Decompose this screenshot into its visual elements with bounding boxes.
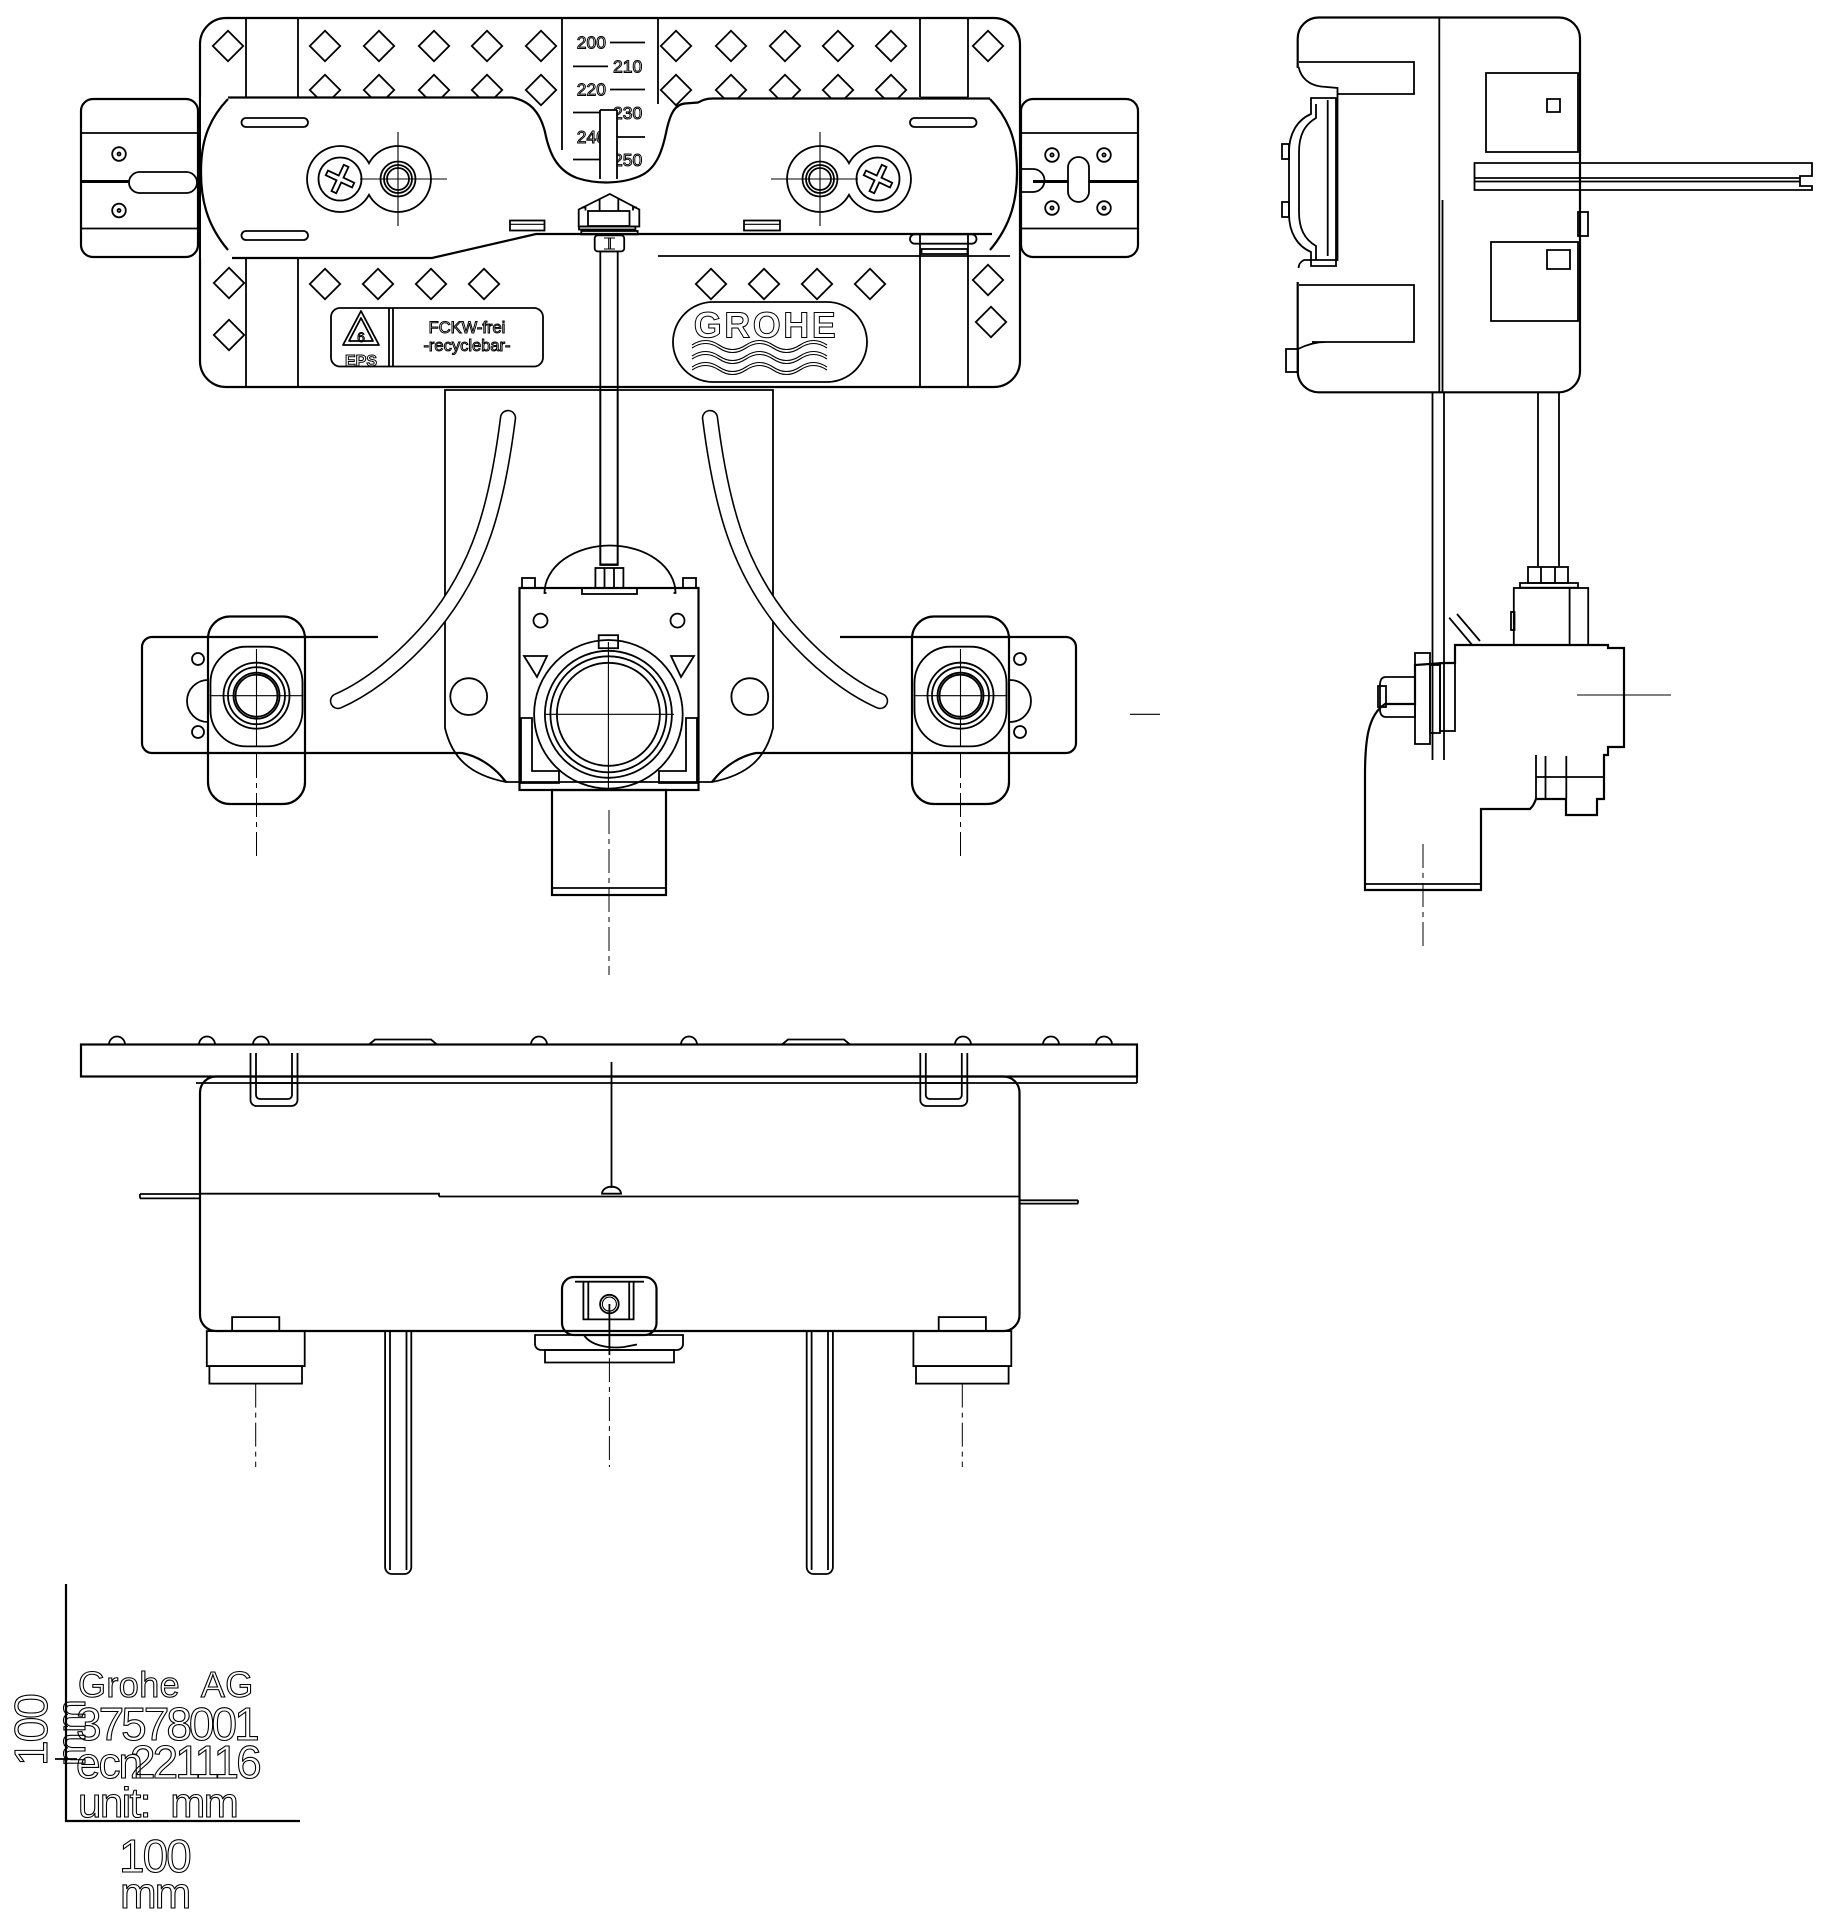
svg-text:GROHE: GROHE <box>694 305 839 346</box>
svg-text:200: 200 <box>577 33 606 53</box>
svg-text:EPS: EPS <box>345 353 377 370</box>
svg-text:220: 220 <box>577 80 606 100</box>
svg-text:6: 6 <box>357 329 365 345</box>
svg-text:FCKW-frei: FCKW-frei <box>429 319 506 337</box>
svg-text:unit: mm: unit: mm <box>78 1779 237 1826</box>
svg-text:210: 210 <box>613 57 642 77</box>
svg-text:mm: mm <box>50 1699 94 1766</box>
svg-text:mm: mm <box>120 1869 189 1918</box>
svg-text:-recyclebar-: -recyclebar- <box>423 337 510 355</box>
